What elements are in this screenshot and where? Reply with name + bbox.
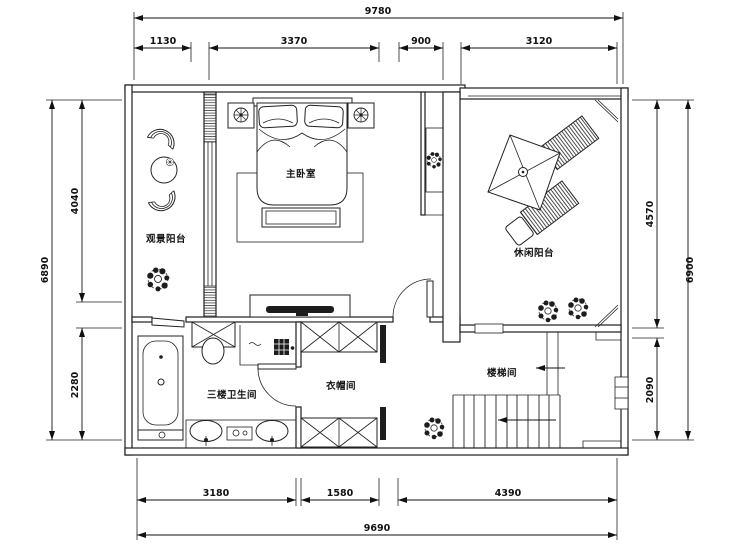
master-bedroom: 主卧室 — [228, 98, 442, 317]
dimensions-right: 6900 4570 2090 — [632, 100, 696, 440]
door-arc — [258, 369, 296, 406]
dim-left-1: 4040 — [70, 187, 81, 214]
room-label-stairwell: 楼梯间 — [487, 367, 517, 379]
window-curtain-hatch — [204, 94, 216, 142]
stairwell: 楼梯间 — [424, 332, 565, 448]
nightstand — [228, 103, 254, 128]
bed-bench — [262, 208, 340, 227]
bedroom-door — [393, 279, 433, 317]
pillow — [259, 105, 298, 128]
chair-icon — [148, 191, 179, 216]
dim-left-2: 2280 — [70, 371, 81, 398]
tv-cabinet — [250, 295, 350, 317]
tv-icon — [266, 306, 334, 313]
pocket-door-leaf — [380, 325, 386, 363]
corner-shelf — [595, 100, 618, 122]
dim-right-overall: 6900 — [685, 256, 696, 283]
cloakroom: 衣帽间 — [301, 322, 386, 447]
plant-icon — [147, 267, 169, 291]
dim-top-1: 1130 — [150, 36, 177, 47]
door-leaf — [427, 281, 433, 317]
shower-head-icon — [274, 339, 289, 355]
stair-treads — [453, 395, 560, 448]
balcony-door-leaf — [152, 318, 184, 327]
dim-top-3: 900 — [411, 36, 431, 47]
room-label-leisure-balcony: 休闲阳台 — [513, 247, 554, 259]
wardrobe — [301, 418, 377, 447]
bathroom: 三楼卫生间 — [138, 318, 296, 448]
toilet — [192, 322, 235, 364]
door-leaf — [258, 364, 296, 369]
pillow — [304, 105, 343, 128]
tub-faucet-icon — [158, 379, 164, 385]
dim-bottom-overall: 9690 — [364, 523, 391, 534]
vanity — [186, 420, 296, 448]
shower — [240, 325, 296, 365]
bathtub — [138, 336, 183, 440]
door-arc — [393, 279, 431, 317]
plant-icon — [427, 152, 442, 168]
pocket-door-leaf — [380, 407, 386, 440]
bathroom-door — [258, 364, 296, 406]
dim-top-2: 3370 — [281, 36, 308, 47]
room-label-master-bedroom: 主卧室 — [286, 168, 316, 180]
room-label-viewing-balcony: 观景阳台 — [145, 233, 186, 245]
dim-right-1: 4570 — [645, 200, 656, 227]
window — [475, 324, 503, 333]
floor-plan-page: 主卧室 观景阳台 休闲阳台 — [0, 0, 740, 555]
corner-shelf — [595, 305, 618, 327]
dimensions-top: 9780 1130 3370 900 3120 — [134, 6, 623, 84]
dim-bottom-2: 1580 — [327, 488, 354, 499]
room-label-bathroom: 三楼卫生间 — [207, 389, 257, 401]
chair-icon — [147, 125, 178, 150]
plant-icon — [568, 298, 588, 320]
dim-left-overall: 6890 — [40, 256, 51, 283]
dimensions-left: 6890 4040 2280 — [40, 100, 122, 440]
table-decor-icon — [166, 158, 174, 166]
plant-icon — [538, 301, 558, 323]
wardrobe — [301, 322, 377, 352]
plant-icon — [424, 418, 444, 440]
lamp-icon — [234, 108, 248, 122]
room-label-cloakroom: 衣帽间 — [326, 380, 356, 392]
leisure-balcony: 休闲阳台 — [488, 100, 618, 327]
dim-top-overall: 9780 — [365, 6, 392, 17]
nightstand — [348, 103, 374, 128]
viewing-balcony: 观景阳台 — [145, 125, 186, 292]
dim-bottom-3: 4390 — [495, 488, 522, 499]
floor-plan-canvas: 主卧室 观景阳台 休闲阳台 — [0, 0, 740, 555]
window — [615, 377, 628, 409]
soap-dish — [227, 427, 252, 440]
shower-figure — [249, 343, 261, 346]
dimensions-bottom: 3180 1580 4390 9690 — [137, 458, 617, 540]
dim-bottom-1: 3180 — [203, 488, 230, 499]
dim-top-4: 3120 — [526, 36, 553, 47]
dim-right-2: 2090 — [645, 376, 656, 403]
lamp-icon — [354, 108, 368, 122]
